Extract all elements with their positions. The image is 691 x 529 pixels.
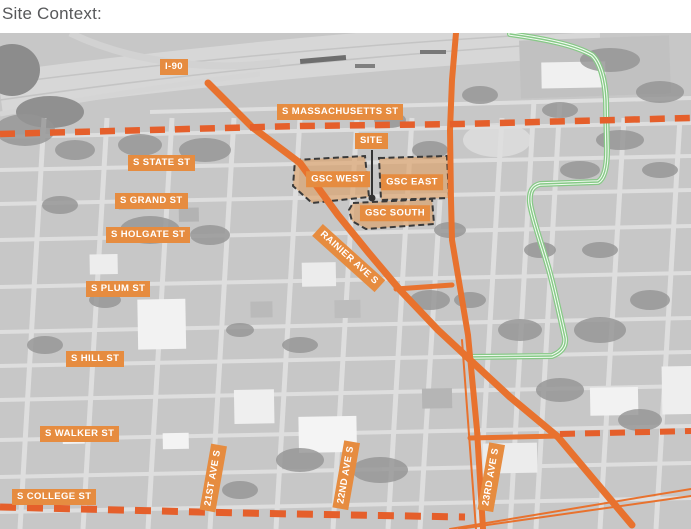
cross-road-lower (470, 436, 560, 438)
gsc-west-label: GSC WEST (306, 171, 370, 187)
street-label-plum: S PLUM ST (86, 281, 150, 297)
gsc-south-label: GSC SOUTH (360, 205, 430, 221)
site-marker-dot (369, 195, 376, 202)
street-label-walker: S WALKER ST (40, 426, 119, 442)
street-label-massachusetts: S MASSACHUSETTS ST (277, 104, 403, 120)
street-label-grand: S GRAND ST (115, 193, 188, 209)
page: { "page": { "title": "Site Context:" }, … (0, 0, 691, 529)
street-label-i90: I-90 (160, 59, 188, 75)
site-context-map: I-90 S MASSACHUSETTS ST SITE S STATE ST … (0, 33, 691, 529)
street-label-hill: S HILL ST (66, 351, 124, 367)
street-label-college: S COLLEGE ST (12, 489, 96, 505)
street-label-holgate: S HOLGATE ST (106, 227, 190, 243)
site-label: SITE (355, 133, 388, 149)
gsc-east-label: GSC EAST (381, 174, 443, 190)
street-label-state: S STATE ST (128, 155, 195, 171)
page-title: Site Context: (2, 4, 102, 24)
